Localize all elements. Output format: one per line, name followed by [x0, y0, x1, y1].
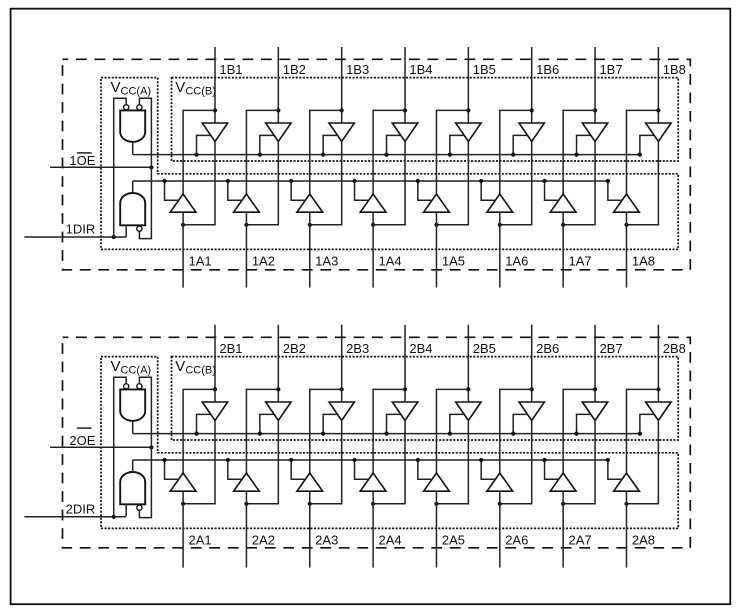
svg-text:2A2: 2A2 [252, 533, 275, 548]
svg-text:1DIR: 1DIR [66, 222, 96, 237]
svg-text:1A4: 1A4 [379, 254, 402, 269]
svg-text:2B7: 2B7 [599, 341, 622, 356]
svg-text:1A8: 1A8 [632, 254, 655, 269]
svg-text:1A3: 1A3 [315, 254, 338, 269]
svg-text:1B1: 1B1 [219, 62, 242, 77]
svg-text:1OE: 1OE [69, 153, 95, 168]
svg-text:2A7: 2A7 [569, 533, 592, 548]
svg-text:2OE: 2OE [69, 433, 95, 448]
svg-text:1B3: 1B3 [346, 62, 369, 77]
svg-text:1A1: 1A1 [189, 254, 212, 269]
svg-text:2B1: 2B1 [219, 341, 242, 356]
svg-text:2A8: 2A8 [632, 533, 655, 548]
svg-text:1A6: 1A6 [505, 254, 528, 269]
svg-text:2B5: 2B5 [473, 341, 496, 356]
svg-text:1B6: 1B6 [536, 62, 559, 77]
svg-text:2B3: 2B3 [346, 341, 369, 356]
svg-text:1A5: 1A5 [442, 254, 465, 269]
svg-text:2A5: 2A5 [442, 533, 465, 548]
svg-text:2A4: 2A4 [379, 533, 402, 548]
svg-text:2B2: 2B2 [283, 341, 306, 356]
svg-text:1A7: 1A7 [569, 254, 592, 269]
svg-text:2A1: 2A1 [189, 533, 212, 548]
svg-text:1A2: 1A2 [252, 254, 275, 269]
svg-text:1B8: 1B8 [663, 62, 686, 77]
svg-text:2A3: 2A3 [315, 533, 338, 548]
svg-text:2A6: 2A6 [505, 533, 528, 548]
svg-text:1B5: 1B5 [473, 62, 496, 77]
svg-text:2B4: 2B4 [409, 341, 432, 356]
svg-text:1B4: 1B4 [409, 62, 432, 77]
svg-text:2B8: 2B8 [663, 341, 686, 356]
svg-text:1B2: 1B2 [283, 62, 306, 77]
svg-text:2DIR: 2DIR [66, 501, 96, 516]
svg-text:1B7: 1B7 [599, 62, 622, 77]
svg-text:2B6: 2B6 [536, 341, 559, 356]
